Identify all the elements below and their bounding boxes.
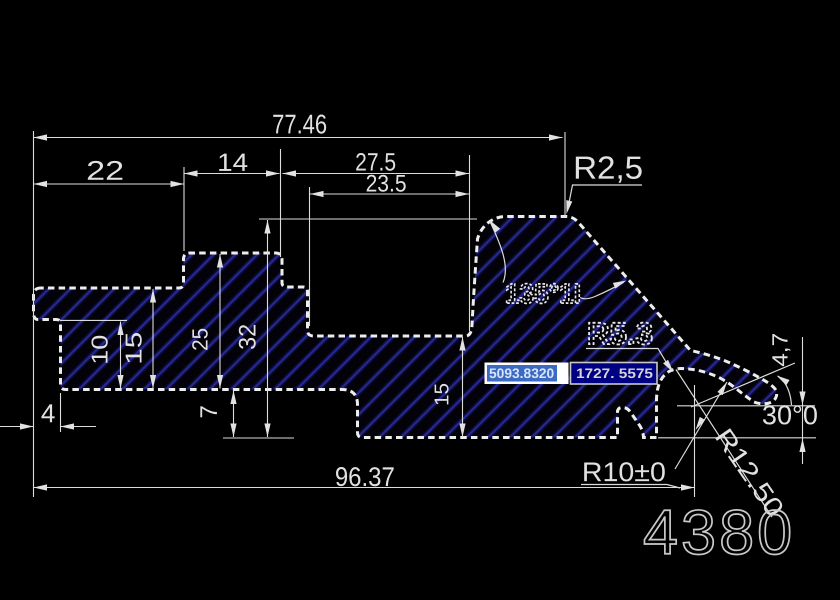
svg-text:10: 10 [86,335,112,365]
svg-text:15: 15 [431,383,453,406]
svg-text:R2,5: R2,5 [573,150,643,186]
svg-text:R10±0: R10±0 [582,457,666,487]
svg-text:135°1I: 135°1I [505,278,581,309]
svg-text:7: 7 [196,405,223,418]
svg-text:4: 4 [41,398,55,428]
svg-text:96.37: 96.37 [335,462,395,492]
svg-text:32: 32 [234,324,261,350]
svg-text:14: 14 [217,149,248,177]
svg-text:5093.8320: 5093.8320 [489,366,555,381]
svg-text:4380: 4380 [643,498,795,568]
svg-text:25: 25 [187,328,212,351]
svg-text:4,7: 4,7 [767,333,792,367]
svg-text:77.46: 77.46 [272,109,327,139]
svg-text:15: 15 [120,332,146,365]
svg-text:R5.3: R5.3 [587,316,653,351]
svg-text:30°0: 30°0 [762,400,818,430]
svg-text:22: 22 [86,156,124,186]
svg-text:1727. 5575: 1727. 5575 [576,366,653,381]
svg-text:23.5: 23.5 [366,170,407,197]
